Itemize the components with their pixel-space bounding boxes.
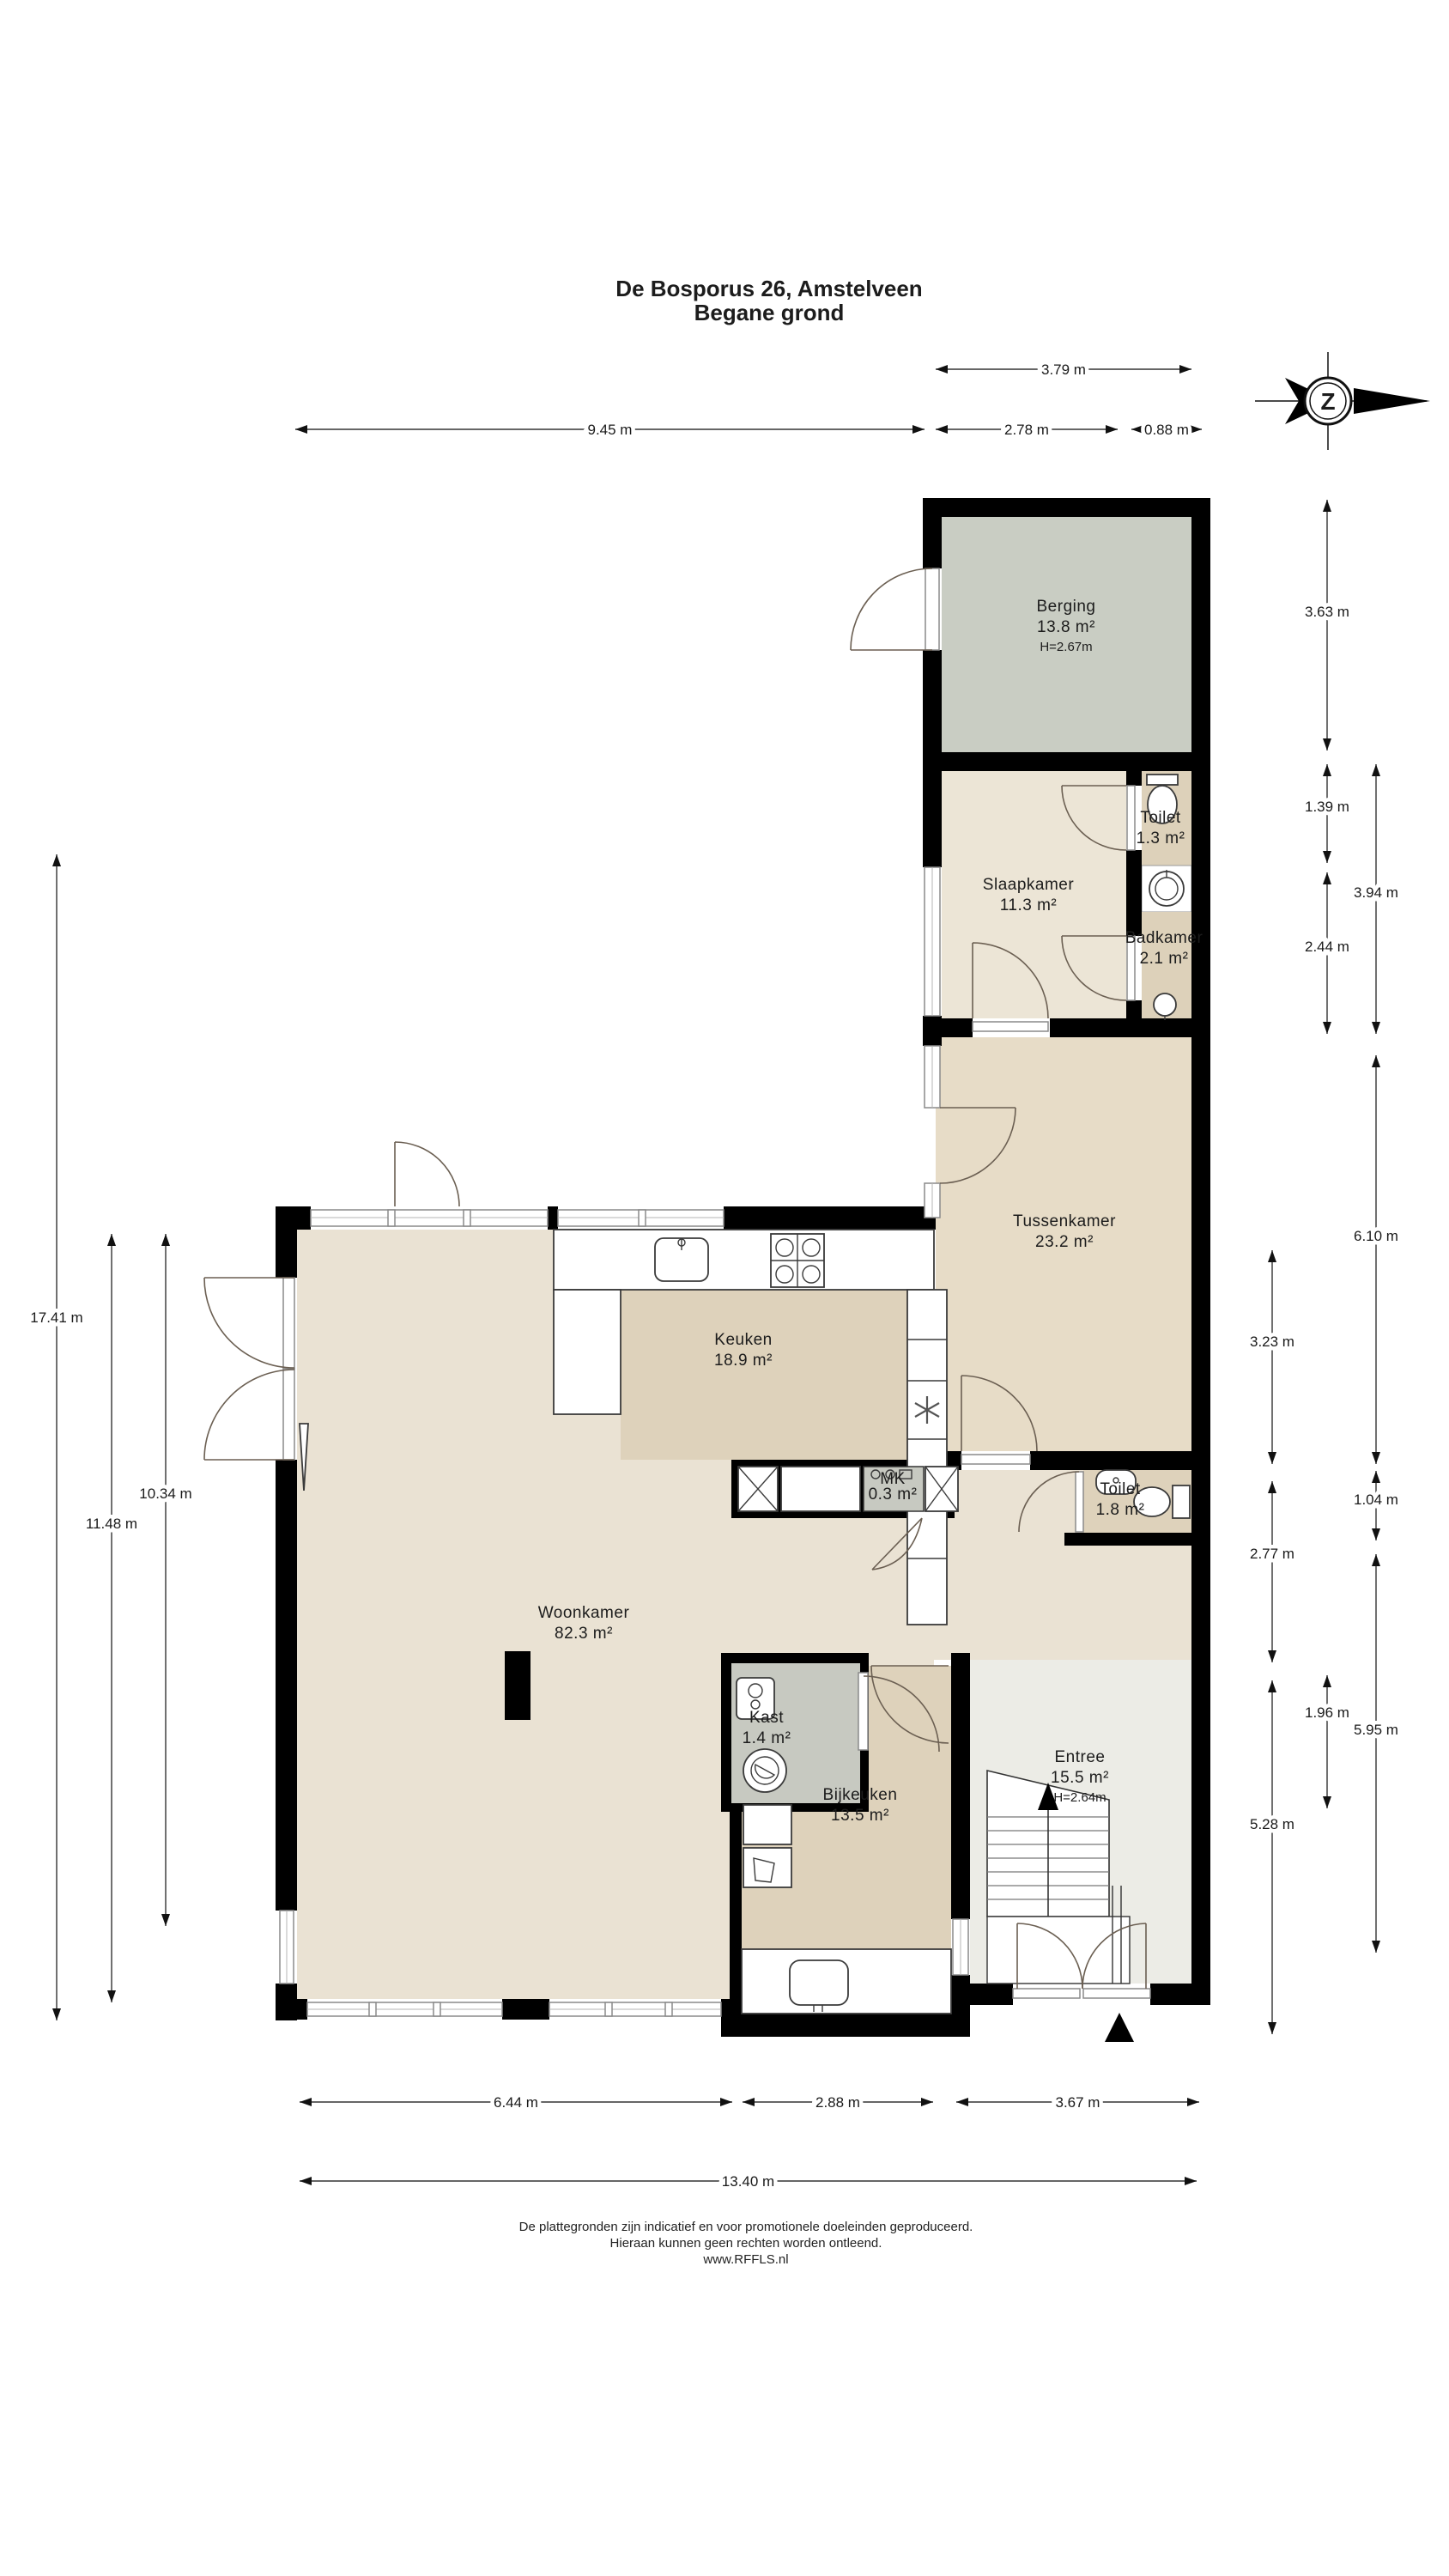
svg-text:3.63 m: 3.63 m xyxy=(1305,604,1349,620)
svg-text:2.88 m: 2.88 m xyxy=(815,2094,860,2111)
dimension-6.10m: 6.10 m xyxy=(1354,1055,1398,1464)
svg-text:3.79 m: 3.79 m xyxy=(1041,361,1086,378)
dimension-1.39m: 1.39 m xyxy=(1305,764,1349,863)
cabinet-box xyxy=(781,1467,860,1511)
svg-text:6.44 m: 6.44 m xyxy=(494,2094,538,2111)
svg-text:5.28 m: 5.28 m xyxy=(1250,1816,1294,1832)
entrance-marker-icon xyxy=(1105,2013,1134,2042)
svg-text:Badkamer: Badkamer xyxy=(1125,929,1203,947)
slaapkamer-floor xyxy=(942,771,1126,1018)
svg-text:Woonkamer: Woonkamer xyxy=(538,1604,630,1622)
keuken-floor xyxy=(621,1290,907,1460)
svg-text:15.5 m²: 15.5 m² xyxy=(1051,1769,1109,1787)
svg-text:3.94 m: 3.94 m xyxy=(1354,884,1398,901)
floorplan-canvas: Z De Bosporus 26, Amstelveen Begane gron… xyxy=(0,0,1449,2576)
svg-text:82.3 m²: 82.3 m² xyxy=(555,1625,613,1643)
svg-text:1.4 m²: 1.4 m² xyxy=(743,1729,791,1747)
svg-text:Keuken: Keuken xyxy=(714,1331,772,1349)
svg-text:H=2.64m: H=2.64m xyxy=(1053,1790,1106,1805)
svg-text:Toilet: Toilet xyxy=(1140,809,1181,827)
svg-text:1.96 m: 1.96 m xyxy=(1305,1704,1349,1721)
room-label-entree: Entree15.5 m²H=2.64m xyxy=(1051,1748,1109,1805)
svg-text:5.95 m: 5.95 m xyxy=(1354,1722,1398,1738)
dimension-5.95m: 5.95 m xyxy=(1354,1554,1398,1953)
svg-text:13.40 m: 13.40 m xyxy=(722,2173,774,2190)
svg-text:10.34 m: 10.34 m xyxy=(139,1485,191,1502)
dimension-13.40m: 13.40 m xyxy=(300,2173,1197,2190)
svg-text:11.48 m: 11.48 m xyxy=(86,1516,137,1532)
dimension-0.88m: 0.88 m xyxy=(1131,422,1202,438)
dimension-3.79m: 3.79 m xyxy=(936,361,1191,378)
dimension-6.44m: 6.44 m xyxy=(300,2094,732,2111)
door-swing xyxy=(851,568,932,650)
svg-text:17.41 m: 17.41 m xyxy=(30,1309,82,1326)
room-label-berging: Berging13.8 m²H=2.67m xyxy=(1037,598,1096,654)
kitchen-cabinet-left xyxy=(554,1290,621,1414)
svg-text:H=2.67m: H=2.67m xyxy=(1040,640,1092,654)
svg-text:Toilet: Toilet xyxy=(1100,1480,1141,1498)
dimension-11.48m: 11.48 m xyxy=(86,1234,137,2002)
svg-text:2.44 m: 2.44 m xyxy=(1305,939,1349,955)
kitchen-counter xyxy=(554,1230,934,1290)
dimension-3.67m: 3.67 m xyxy=(956,2094,1199,2111)
svg-text:2.1 m²: 2.1 m² xyxy=(1140,950,1189,968)
dimension-2.44m: 2.44 m xyxy=(1305,872,1349,1034)
dimension-3.94m: 3.94 m xyxy=(1354,764,1398,1034)
title-line2: Begane grond xyxy=(694,300,845,325)
floorplan-page: Z De Bosporus 26, Amstelveen Begane gron… xyxy=(0,0,1449,2576)
dimension-2.77m: 2.77 m xyxy=(1250,1481,1294,1662)
svg-text:13.8 m²: 13.8 m² xyxy=(1037,618,1095,636)
svg-text:13.5 m²: 13.5 m² xyxy=(831,1807,889,1825)
svg-text:1.39 m: 1.39 m xyxy=(1305,799,1349,815)
dimension-9.45m: 9.45 m xyxy=(295,422,925,438)
svg-text:Entree: Entree xyxy=(1055,1748,1106,1766)
svg-text:6.10 m: 6.10 m xyxy=(1354,1228,1398,1244)
svg-text:Kast: Kast xyxy=(749,1709,784,1727)
dimension-1.04m: 1.04 m xyxy=(1354,1471,1398,1540)
svg-text:3.67 m: 3.67 m xyxy=(1056,2094,1100,2111)
footer-disclaimer: De plattegronden zijn indicatief en voor… xyxy=(519,2220,973,2267)
svg-text:9.45 m: 9.45 m xyxy=(588,422,633,438)
svg-text:11.3 m²: 11.3 m² xyxy=(1000,896,1058,914)
compass-icon: Z xyxy=(1255,352,1430,450)
svg-text:23.2 m²: 23.2 m² xyxy=(1035,1233,1094,1251)
footer-line2: Hieraan kunnen geen rechten worden ontle… xyxy=(610,2236,882,2251)
svg-text:Slaapkamer: Slaapkamer xyxy=(983,876,1075,894)
dimension-2.88m: 2.88 m xyxy=(743,2094,933,2111)
title-line1: De Bosporus 26, Amstelveen xyxy=(615,276,922,301)
footer-line3: www.RFFLS.nl xyxy=(702,2252,788,2267)
svg-text:1.8 m²: 1.8 m² xyxy=(1096,1501,1145,1519)
svg-text:Berging: Berging xyxy=(1037,598,1096,616)
dimension-17.41m: 17.41 m xyxy=(30,854,82,2020)
svg-text:18.9 m²: 18.9 m² xyxy=(714,1352,773,1370)
svg-text:Tussenkamer: Tussenkamer xyxy=(1013,1212,1116,1230)
svg-text:2.77 m: 2.77 m xyxy=(1250,1546,1294,1562)
dimension-5.28m: 5.28 m xyxy=(1250,1680,1294,2034)
svg-text:2.78 m: 2.78 m xyxy=(1004,422,1049,438)
stair-landing xyxy=(987,1917,1130,1984)
hob-icon xyxy=(771,1234,824,1287)
bijkeuken-sink xyxy=(790,1960,848,2005)
appliance-box xyxy=(743,1805,791,1844)
page-title: De Bosporus 26, Amstelveen Begane grond xyxy=(615,276,922,325)
svg-text:3.23 m: 3.23 m xyxy=(1250,1334,1294,1350)
svg-text:1.3 m²: 1.3 m² xyxy=(1137,829,1185,848)
compass-letter: Z xyxy=(1320,388,1335,415)
structural-column xyxy=(505,1651,530,1720)
dimension-1.96m: 1.96 m xyxy=(1305,1675,1349,1808)
svg-text:0.3 m²: 0.3 m² xyxy=(869,1485,918,1504)
dimension-10.34m: 10.34 m xyxy=(139,1234,191,1926)
svg-text:0.88 m: 0.88 m xyxy=(1144,422,1189,438)
washing-machine-icon xyxy=(743,1749,786,1792)
dimension-3.63m: 3.63 m xyxy=(1305,500,1349,750)
dimension-3.23m: 3.23 m xyxy=(1250,1250,1294,1464)
dimension-2.78m: 2.78 m xyxy=(936,422,1118,438)
svg-text:Bijkeuken: Bijkeuken xyxy=(823,1786,898,1804)
svg-text:1.04 m: 1.04 m xyxy=(1354,1492,1398,1508)
footer-line1: De plattegronden zijn indicatief en voor… xyxy=(519,2220,973,2234)
